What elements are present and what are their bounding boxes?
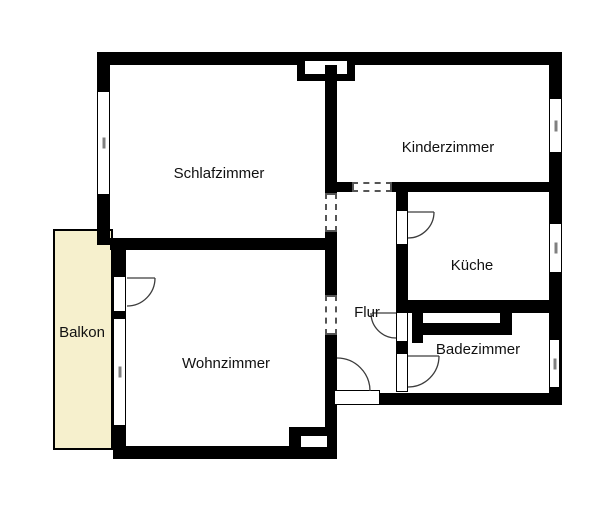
schlafzimmer-flur-opening [325,193,337,232]
window-tick [102,138,105,149]
balkon-door-arc [127,278,155,306]
room-label-flur: Flur [354,305,380,320]
kinderzimmer-flur-opening [352,182,392,192]
window-tick [554,120,557,131]
wall-segment-kueche-left-upper [396,182,408,210]
room-label-balkon: Balkon [59,325,105,340]
duct-wall-right [500,300,512,335]
wohnzimmer-flur-opening [325,295,337,335]
room-label-schlafzimmer: Schlafzimmer [174,166,265,181]
wall-segment-schlaf-kinder-divider [325,65,337,193]
badezimmer-window [549,339,560,388]
window-tick [553,358,556,369]
wall-segment-schlaf-wohn-divider [110,238,337,250]
window-tick [554,243,557,254]
flur-door-opening [396,312,408,342]
wall-segment-wohnzimmer-left-c [113,426,126,447]
badezimmer-door-arc [408,356,439,387]
window-tick [118,367,121,378]
wohnzimmer-balkon-window [113,318,126,426]
kueche-door-opening [396,210,408,245]
room-label-badezimmer: Badezimmer [436,342,520,357]
floor-plan: Schlafzimmer Kinderzimmer Küche Flur Bad… [0,0,610,506]
entrance-door-arc [337,358,370,391]
room-label-wohnzimmer: Wohnzimmer [182,356,270,371]
room-label-kueche: Küche [451,258,494,273]
badezimmer-door-opening [396,353,408,392]
duct-wall-bottom [412,323,512,335]
chimney-shaft-bottom-cavity [301,436,327,447]
kueche-window [549,223,562,273]
kinderzimmer-window [549,98,562,153]
wall-segment-between-doors [396,342,408,353]
schlafzimmer-window [97,91,110,195]
kueche-door-arc [408,212,434,238]
room-label-kinderzimmer: Kinderzimmer [402,140,495,155]
wall-segment-wohnzimmer-left-a [113,238,126,276]
balkon-door-opening [113,276,126,312]
entrance-door-leaf [334,390,380,405]
